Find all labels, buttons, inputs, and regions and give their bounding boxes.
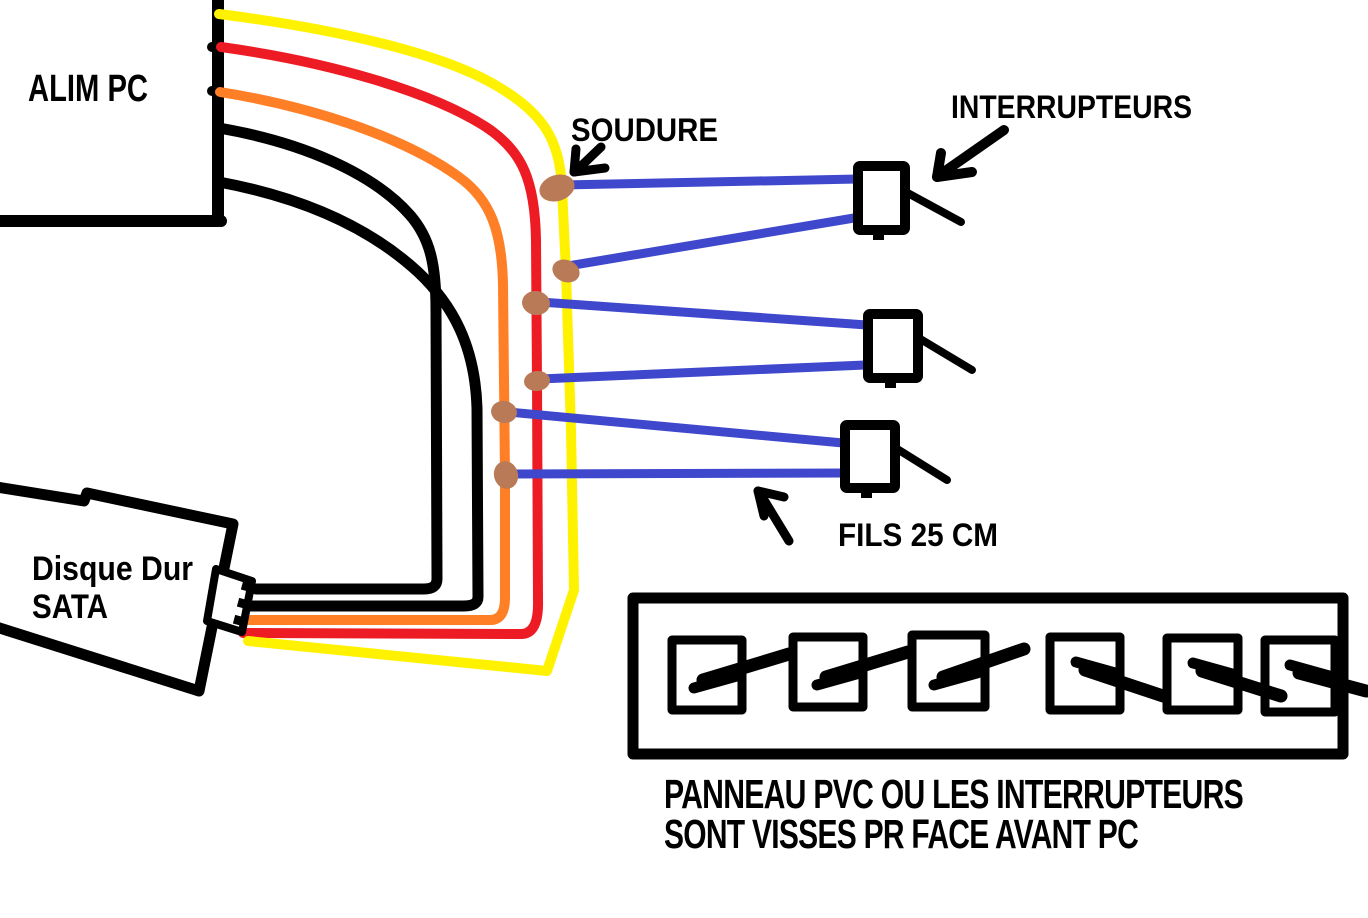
fils-annotation: FILS 25 CM [758,491,998,553]
hdd-label-line2: SATA [32,588,108,626]
panel-caption: PANNEAU PVC OU LES INTERRUPTEURS SONT VI… [664,771,1243,857]
switch-lever [894,447,947,480]
psu-wires [219,14,574,671]
switch-3 [845,425,947,498]
solder-blob-5 [489,399,518,425]
switch-body [845,425,895,488]
switch-body [858,166,905,230]
yellow-wire [219,14,574,671]
switch-body [868,314,918,378]
switch-2 [868,314,972,388]
switch-nub [873,230,884,240]
interrupteurs-annotation: INTERRUPTEURS [937,89,1192,177]
switch-nub [885,378,896,388]
soudure-label: SOUDURE [571,112,718,148]
pvc-panel [633,598,1366,754]
paint-canvas: ALIM PC Disque Dur SATA [0,0,1368,918]
hdd-label-line1: Disque Dur [32,550,193,588]
blue-wire-3 [540,302,867,325]
panel-caption-line2: SONT VISSES PR FACE AVANT PC [664,811,1138,857]
psu-box: ALIM PC [0,0,227,227]
hdd: Disque Dur SATA [0,486,254,691]
fils-arrow-barb [758,491,764,516]
interrupteurs-arrow-barb [937,172,972,177]
fils-label: FILS 25 CM [838,517,998,553]
blue-wire-6 [510,473,849,474]
diagram: ALIM PC Disque Dur SATA [0,0,1368,918]
psu-terminal-dot [207,42,217,52]
blue-wire-1 [562,179,858,185]
solder-blob-3 [520,289,551,317]
solder-blob-4 [523,370,551,393]
blue-wire-2 [568,217,860,266]
psu-box-outline [0,0,218,221]
switch-lever [904,191,961,222]
soudure-arrow-barb [574,168,605,172]
blue-wire-4 [540,365,865,379]
psu-corner-dot [215,215,227,227]
switch-nub [861,488,872,498]
soudure-annotation: SOUDURE [571,112,718,172]
blue-wire-5 [508,412,854,444]
alim-pc-label: ALIM PC [28,68,148,110]
solder-blob-6 [491,458,521,491]
switch-lever [917,337,972,370]
interrupteurs-label: INTERRUPTEURS [951,89,1192,125]
black-wire-1 [219,128,437,589]
